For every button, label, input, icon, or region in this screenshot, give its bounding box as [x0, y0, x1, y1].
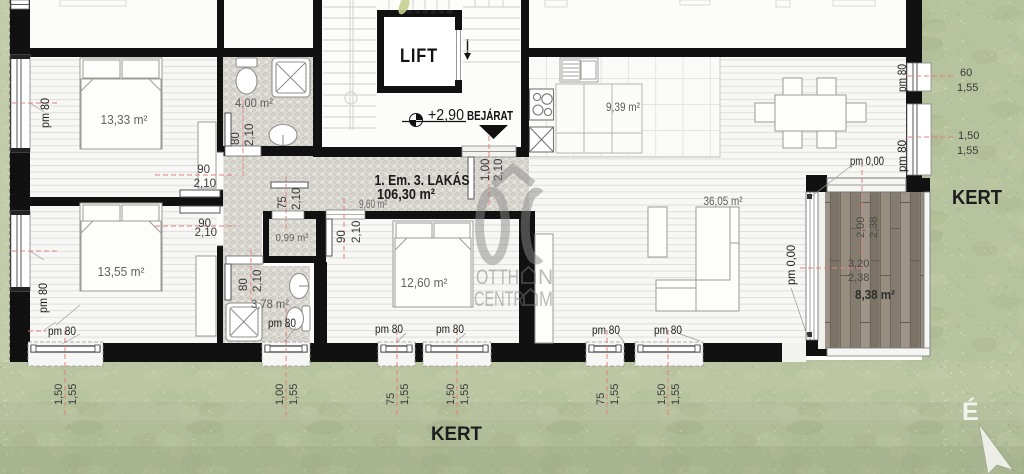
- svg-text:pm 80: pm 80: [268, 316, 296, 330]
- svg-text:1,55: 1,55: [957, 82, 978, 94]
- svg-text:M: M: [539, 288, 553, 311]
- svg-text:75: 75: [385, 393, 397, 405]
- svg-text:80: 80: [238, 278, 250, 291]
- svg-text:3,20: 3,20: [848, 258, 869, 270]
- svg-text:80: 80: [230, 132, 242, 145]
- svg-text:1,50: 1,50: [53, 384, 65, 405]
- svg-text:+2,90: +2,90: [428, 107, 464, 124]
- svg-text:0,99 m²: 0,99 m²: [276, 232, 309, 244]
- svg-text:1,55: 1,55: [957, 145, 978, 157]
- svg-text:KERT: KERT: [952, 187, 1002, 209]
- svg-text:BEJÁRAT: BEJÁRAT: [467, 108, 513, 123]
- svg-text:1,50: 1,50: [958, 130, 979, 142]
- svg-text:pm 80: pm 80: [375, 322, 403, 336]
- svg-text:1,55: 1,55: [399, 384, 411, 405]
- svg-text:1,50: 1,50: [656, 384, 668, 405]
- svg-text:75: 75: [595, 393, 607, 405]
- svg-text:KERT: KERT: [431, 423, 482, 445]
- svg-text:90: 90: [336, 230, 348, 243]
- svg-text:4,00 m²: 4,00 m²: [235, 96, 273, 110]
- svg-text:2,38: 2,38: [848, 272, 869, 284]
- svg-text:2,10: 2,10: [194, 178, 216, 190]
- svg-text:pm 80: pm 80: [36, 283, 50, 313]
- svg-text:1,55: 1,55: [67, 384, 79, 405]
- svg-text:2,00: 2,00: [855, 217, 867, 238]
- svg-text:1,00: 1,00: [480, 159, 492, 181]
- svg-text:pm 80: pm 80: [48, 324, 76, 338]
- svg-text:13,33 m²: 13,33 m²: [101, 112, 149, 127]
- svg-text:1,55: 1,55: [609, 384, 621, 405]
- svg-text:2,10: 2,10: [291, 188, 303, 210]
- svg-text:90: 90: [197, 164, 210, 176]
- svg-text:2,10: 2,10: [195, 227, 217, 239]
- svg-text:CENTR: CENTR: [474, 288, 524, 311]
- svg-text:1,55: 1,55: [670, 384, 682, 405]
- svg-text:8,38 m²: 8,38 m²: [855, 288, 895, 302]
- svg-text:pm 80: pm 80: [654, 323, 682, 337]
- svg-text:pm 80: pm 80: [895, 140, 909, 172]
- svg-text:2,38: 2,38: [868, 217, 880, 238]
- svg-text:2,10: 2,10: [252, 270, 264, 292]
- svg-text:pm 80: pm 80: [38, 98, 52, 128]
- svg-text:106,30 m²: 106,30 m²: [377, 186, 435, 203]
- svg-text:60: 60: [960, 67, 972, 79]
- svg-text:2,10: 2,10: [244, 124, 256, 146]
- svg-text:pm 0,00: pm 0,00: [850, 154, 884, 168]
- svg-text:9,39 m²: 9,39 m²: [606, 100, 640, 114]
- svg-text:LIFT: LIFT: [400, 46, 438, 67]
- svg-text:1,55: 1,55: [459, 384, 471, 405]
- svg-text:36,05 m²: 36,05 m²: [704, 194, 743, 208]
- svg-text:É: É: [962, 397, 979, 426]
- svg-text:3,78 m²: 3,78 m²: [251, 297, 289, 311]
- svg-text:75: 75: [277, 196, 289, 209]
- svg-text:pm 80: pm 80: [895, 64, 909, 92]
- svg-text:pm 80: pm 80: [436, 322, 464, 336]
- svg-text:1,00: 1,00: [274, 384, 286, 405]
- svg-text:1,55: 1,55: [288, 384, 300, 405]
- svg-text:1,50: 1,50: [445, 384, 457, 405]
- svg-text:pm 0,00: pm 0,00: [784, 245, 798, 285]
- svg-text:OTTH: OTTH: [476, 266, 519, 289]
- svg-text:2,10: 2,10: [351, 221, 363, 243]
- svg-text:12,60 m²: 12,60 m²: [401, 275, 449, 290]
- svg-text:13,55 m²: 13,55 m²: [98, 264, 146, 279]
- svg-text:pm 80: pm 80: [592, 323, 620, 337]
- svg-text:N: N: [538, 266, 553, 289]
